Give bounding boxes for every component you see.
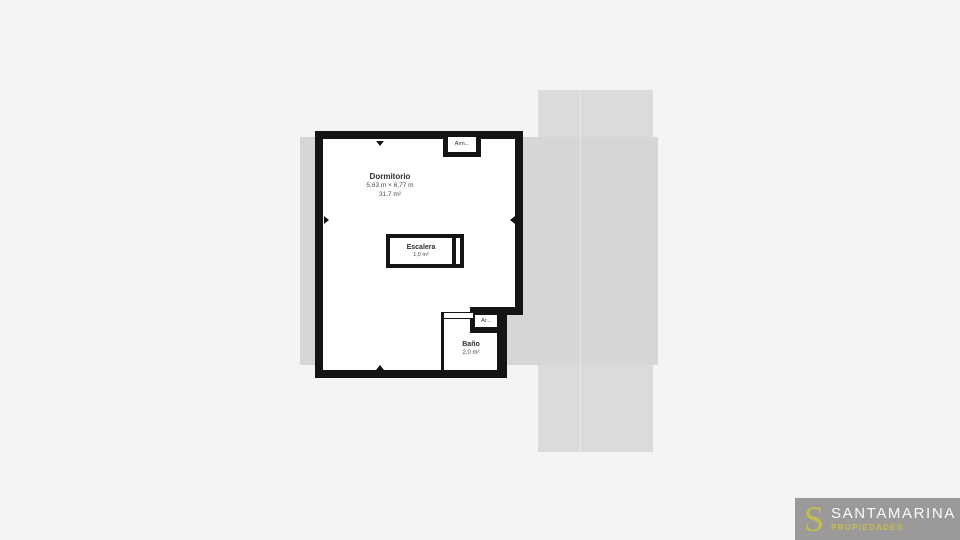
dormitorio-name: Dormitorio <box>330 172 450 182</box>
dormitorio-label: Dormitorio 5,63 m × 6,77 m 31,7 m² <box>330 172 450 199</box>
wall-arrow-top-icon <box>376 141 384 146</box>
stairs-interior: Escalera 1,0 m² <box>390 238 452 264</box>
bano-name: Baño <box>431 340 511 349</box>
brand-tagline: PROPIEDADES <box>831 523 956 532</box>
room-dormitorio <box>323 139 515 307</box>
stairs-area: 1,0 m² <box>413 252 429 259</box>
dormitorio-dimensions: 5,63 m × 6,77 m <box>330 182 450 191</box>
stairs-name: Escalera <box>407 243 436 252</box>
brand-logo: S SANTAMARINA PROPIEDADES <box>795 498 960 540</box>
floorplan: Ar... Arm... Escalera 1,0 m² Dormitorio … <box>315 131 523 378</box>
stairs-box: Escalera 1,0 m² <box>386 234 464 268</box>
bano-area: 2,0 m² <box>431 349 511 357</box>
brand-text: SANTAMARINA PROPIEDADES <box>831 506 956 532</box>
canvas: Ar... Arm... Escalera 1,0 m² Dormitorio … <box>0 0 960 540</box>
brand-name: SANTAMARINA <box>831 506 956 521</box>
dormitorio-area: 31,7 m² <box>330 191 450 200</box>
panel-seam-divider <box>580 90 581 452</box>
stairs-slot <box>456 238 460 264</box>
closet-ar-label: Ar... <box>475 315 497 327</box>
closet-arm-box: Arm... <box>443 131 481 157</box>
wall-arrow-right-icon <box>510 216 515 224</box>
brand-monogram-icon: S <box>804 504 824 534</box>
wall-arrow-bottom-icon <box>376 365 384 370</box>
bano-door-bar <box>441 312 474 319</box>
bano-label: Baño 2,0 m² <box>431 340 511 357</box>
wall-arrow-left-icon <box>324 216 329 224</box>
closet-arm-label: Arm... <box>448 137 476 152</box>
